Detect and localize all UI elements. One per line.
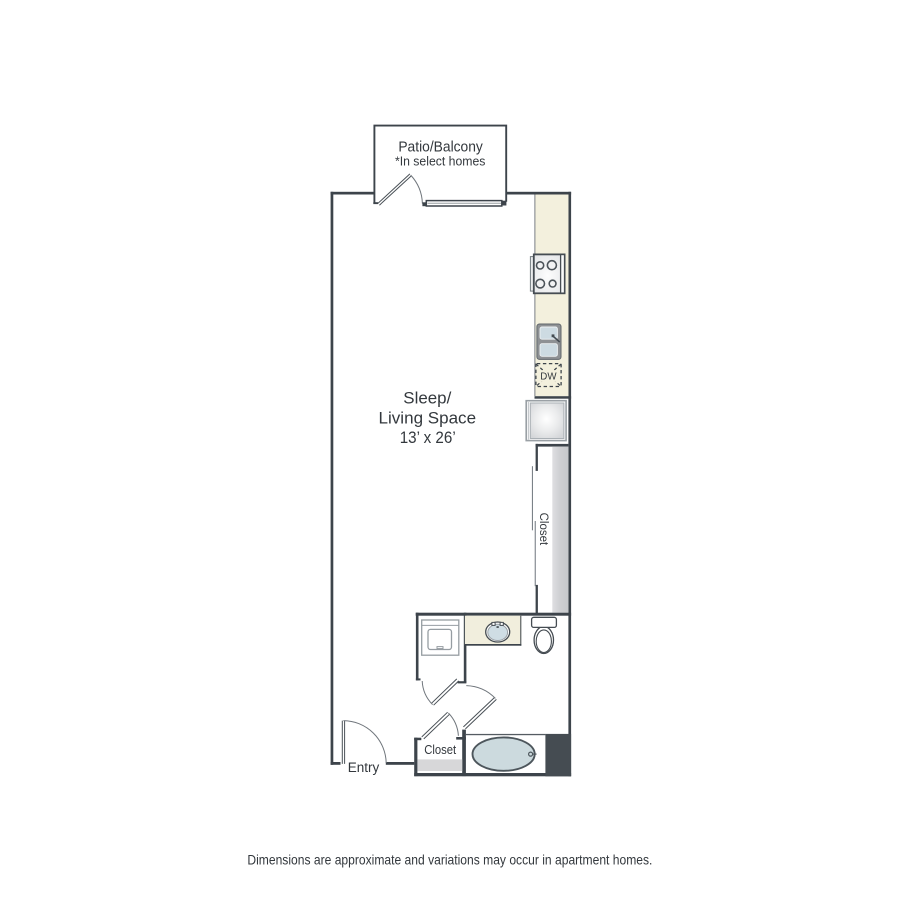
- svg-text:Closet: Closet: [424, 743, 456, 757]
- svg-text:Entry: Entry: [348, 760, 380, 775]
- svg-text:13’ x 26’: 13’ x 26’: [400, 429, 456, 447]
- svg-text:Sleep/: Sleep/: [403, 389, 451, 407]
- svg-text:Living Space: Living Space: [379, 409, 477, 427]
- svg-text:DW: DW: [540, 371, 557, 382]
- svg-text:Closet: Closet: [537, 513, 549, 546]
- svg-text:Dimensions are approximate and: Dimensions are approximate and variation…: [247, 851, 652, 867]
- svg-text:Patio/Balcony: Patio/Balcony: [398, 139, 483, 155]
- svg-text:*In select homes: *In select homes: [395, 154, 486, 168]
